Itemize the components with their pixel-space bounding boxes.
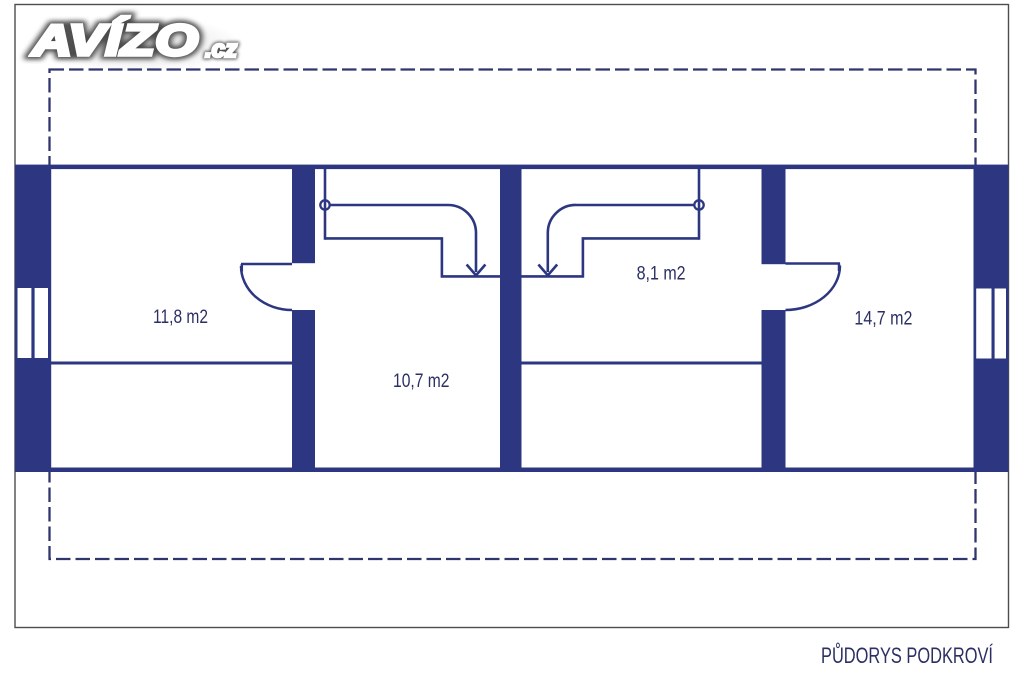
svg-text:10,7 m2: 10,7 m2 [393, 370, 450, 392]
svg-text:14,7 m2: 14,7 m2 [854, 308, 912, 330]
svg-text:PŮDORYS PODKROVÍ: PŮDORYS PODKROVÍ [821, 643, 994, 668]
svg-text:11,8 m2: 11,8 m2 [153, 306, 208, 328]
svg-text:8,1 m2: 8,1 m2 [637, 262, 686, 284]
